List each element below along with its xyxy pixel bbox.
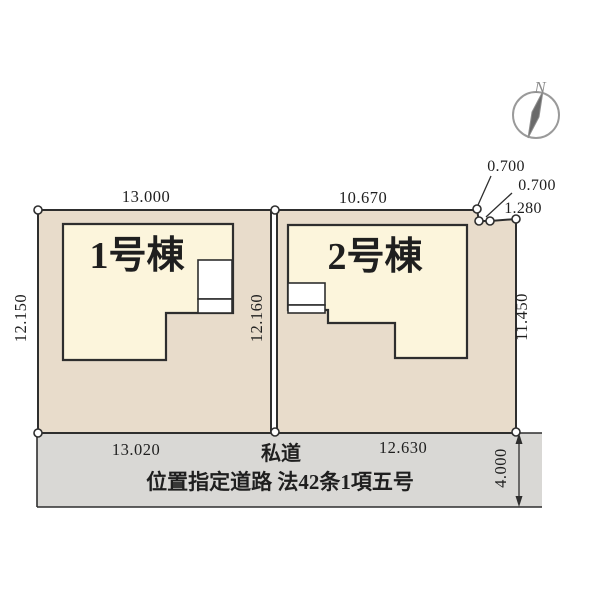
site-plan-svg: N 1号棟 2号棟 13.000 10.670 0.700 0.700 1.28… [0,0,600,600]
lot-1-left-dimension: 12.150 [11,294,30,342]
corner-dim-leader-1 [478,176,491,205]
site-plan: N 1号棟 2号棟 13.000 10.670 0.700 0.700 1.28… [0,0,600,600]
lot-1-top-dimension: 13.000 [122,187,170,206]
middle-boundary-dimension: 12.160 [247,294,266,342]
corner-dimension-1: 0.700 [487,158,525,175]
private-road-label: 私道 [261,441,301,465]
lot-1-name-label: 1号棟 [89,235,185,277]
boundary-marker [473,205,481,213]
boundary-marker [34,206,42,214]
boundary-marker [34,429,42,437]
road-regulation-label: 位置指定道路 法42条1項五号 [146,470,414,494]
boundary-marker [512,428,520,436]
compass-needle-icon [528,91,543,138]
compass: N [513,78,559,138]
lot-2-right-dimension: 11.450 [512,293,531,341]
building-1-porch-upper [198,260,232,299]
lot-2-bottom-dimension: 12.630 [379,438,427,457]
building-2-porch-upper [288,283,325,305]
corner-dimension-3: 1.280 [504,200,542,217]
compass-north-label: N [533,78,547,97]
boundary-marker [486,217,494,225]
corner-dimension-2: 0.700 [518,177,556,194]
lot-1-bottom-dimension: 13.020 [112,440,160,459]
lot-2-name-label: 2号棟 [327,236,423,278]
boundary-marker [271,206,279,214]
boundary-marker [475,217,483,225]
road-width-dimension: 4.000 [491,448,510,488]
building-1-porch-lower [198,299,232,313]
boundary-marker [271,428,279,436]
building-2-porch-lower [288,305,325,313]
lot-2-top-dimension: 10.670 [339,188,387,207]
